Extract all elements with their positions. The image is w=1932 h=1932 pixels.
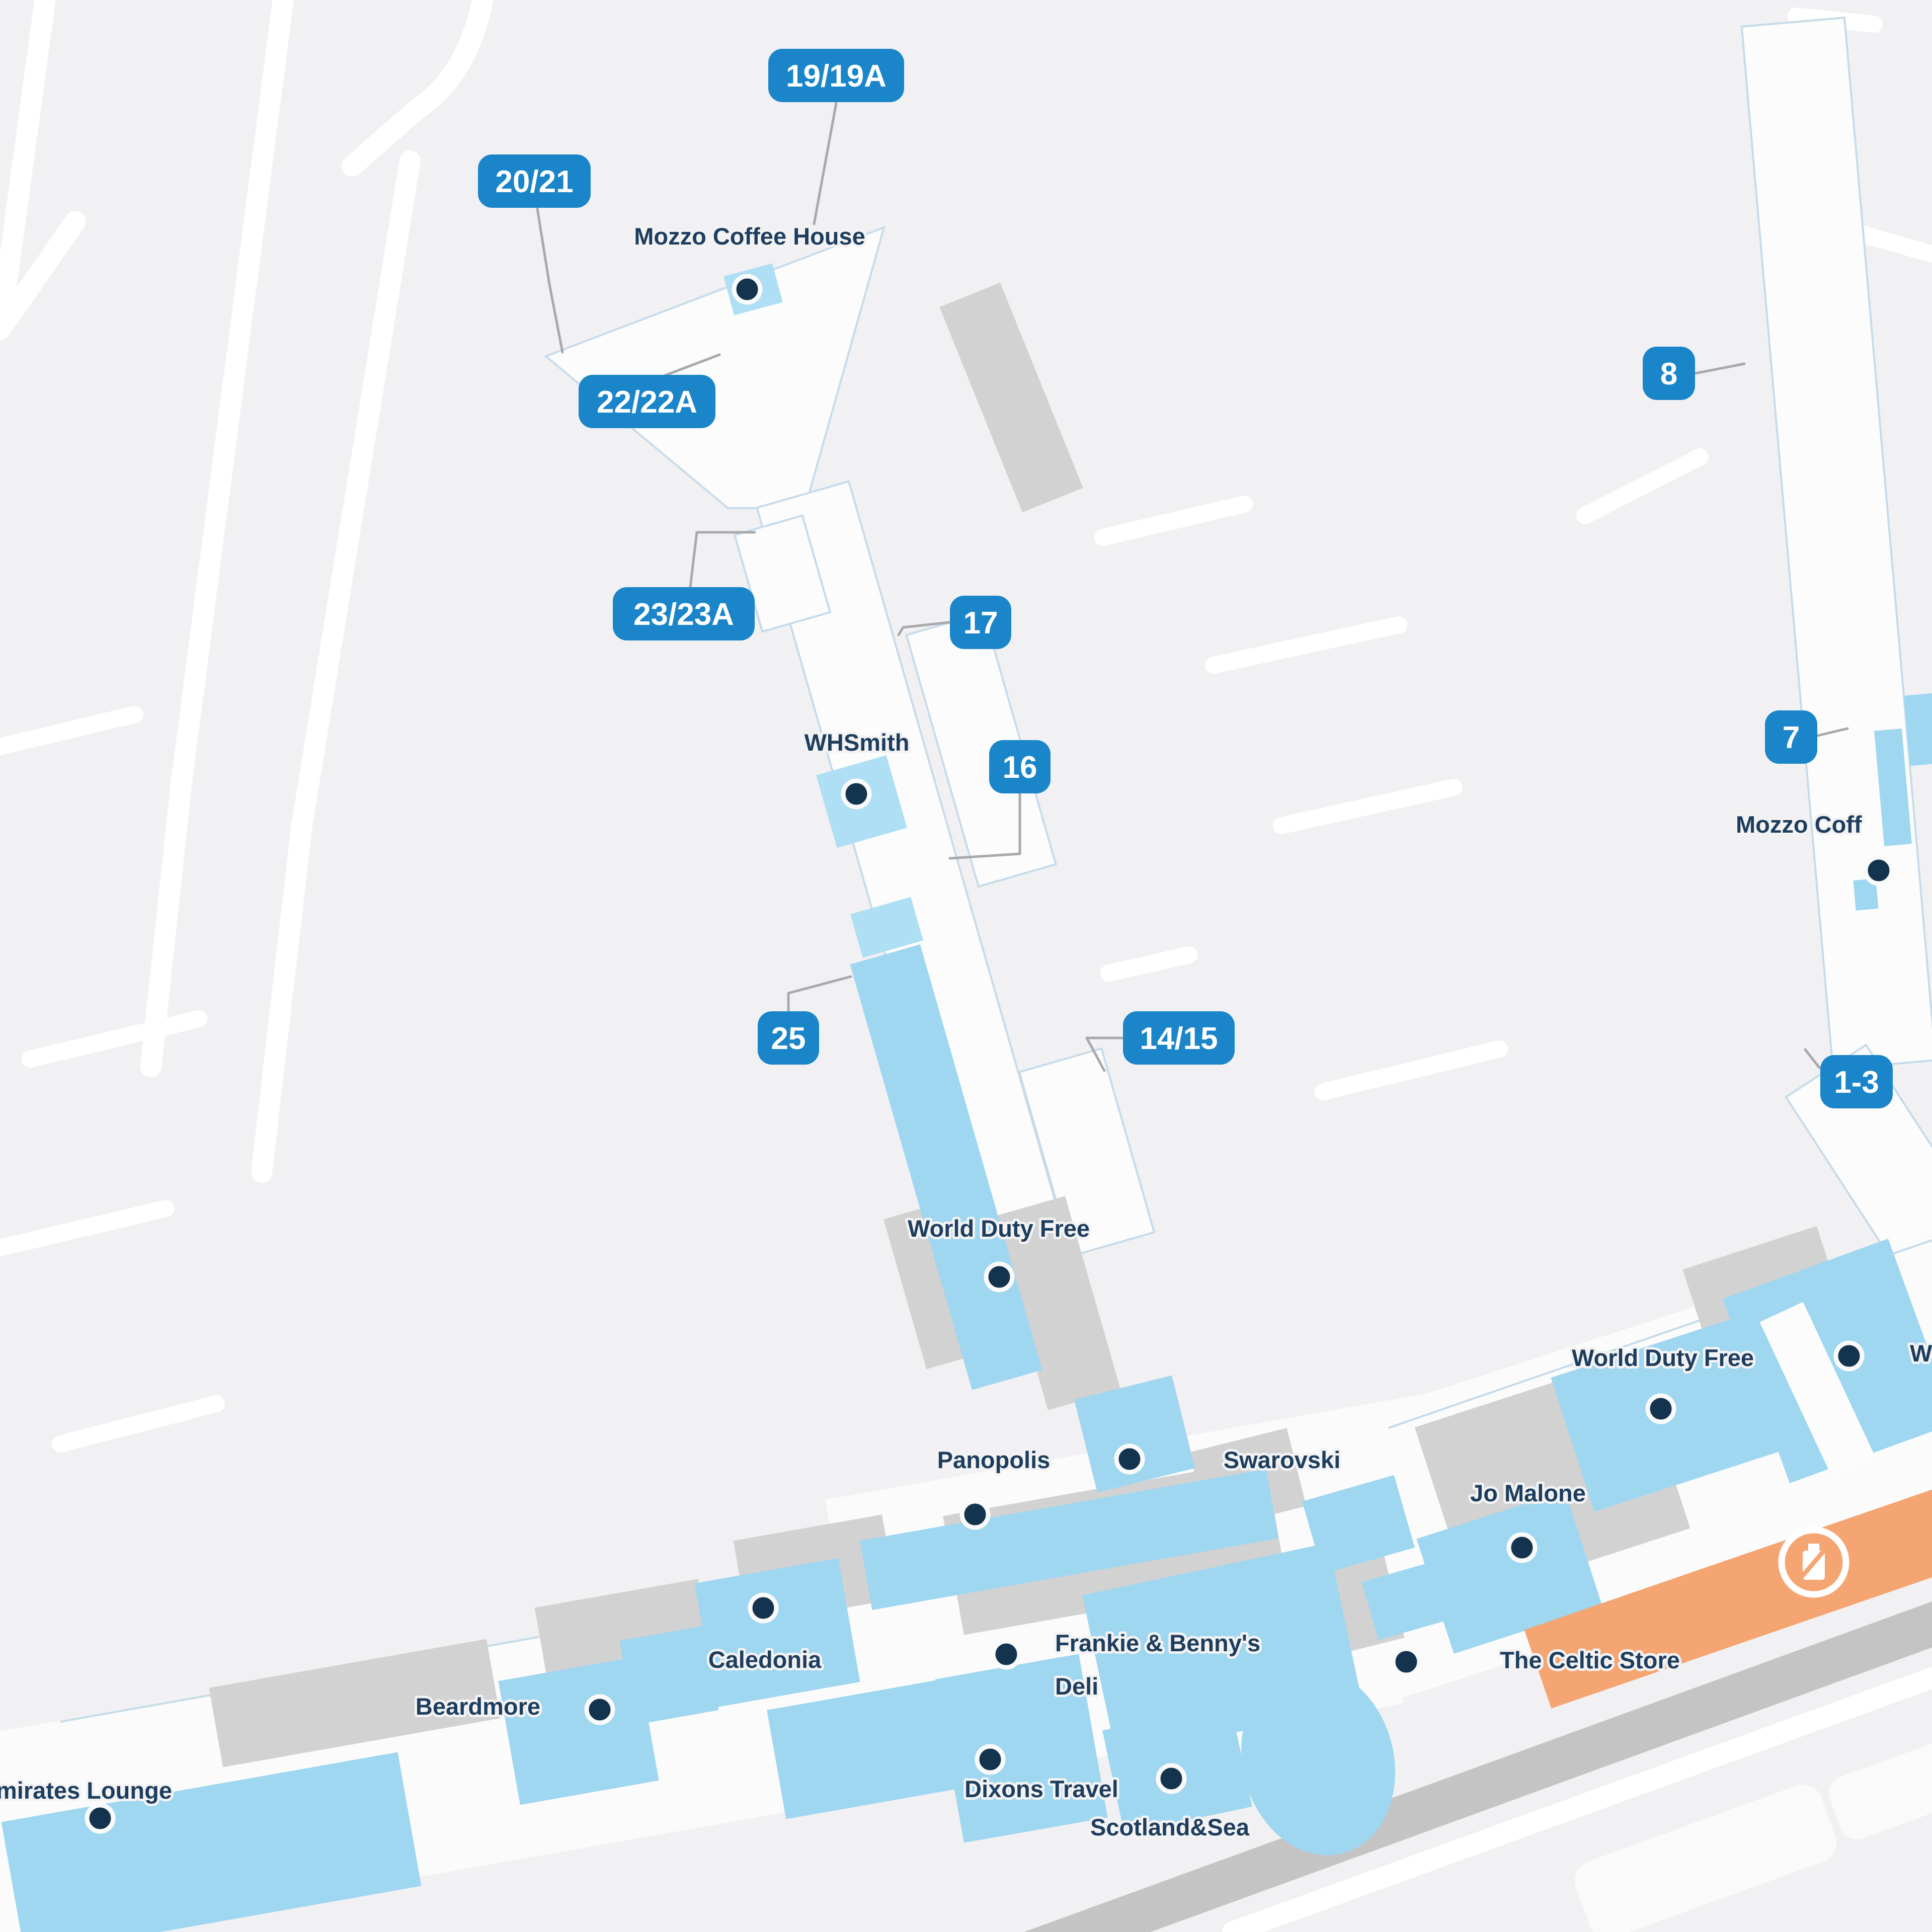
no-liquids-icon-bottle-neck bbox=[1808, 1544, 1819, 1552]
store-label-truncated-label-w[interactable]: W bbox=[1910, 1340, 1932, 1366]
store-marker-dot-world-duty-free-pier[interactable] bbox=[986, 1264, 1012, 1290]
store-marker-dot-world-duty-free-main[interactable] bbox=[1836, 1343, 1862, 1369]
gate-19-19a[interactable]: 19/19A bbox=[768, 49, 904, 102]
store-marker-dot-whsmith[interactable] bbox=[843, 781, 869, 807]
no-liquids-icon bbox=[1782, 1530, 1846, 1594]
store-marker-dot-mozzo-coffee-house-main[interactable] bbox=[1866, 857, 1892, 883]
store-marker-dot-emirates-lounge[interactable] bbox=[87, 1805, 113, 1831]
store-label-world-duty-free-pier[interactable]: World Duty Free bbox=[908, 1215, 1090, 1242]
gate-20-21[interactable]: 20/21 bbox=[478, 154, 591, 208]
store-marker-dot-scotland-and-sea[interactable] bbox=[1158, 1765, 1184, 1792]
store-marker-dot-beardmore[interactable] bbox=[587, 1697, 613, 1723]
store-label-swarovski[interactable]: Swarovski bbox=[1224, 1446, 1341, 1473]
store-marker-dot-mozzo-coffee-house-pier[interactable] bbox=[734, 276, 760, 302]
gate-1-3[interactable]: 1-3 bbox=[1820, 1055, 1893, 1108]
gate-label-8: 8 bbox=[1660, 357, 1677, 391]
gate-25[interactable]: 25 bbox=[758, 1011, 819, 1065]
store-label-emirates-lounge[interactable]: mirates Lounge bbox=[0, 1777, 172, 1804]
airport-map: Mozzo Coffee HouseWHSmithWorld Duty Free… bbox=[0, 0, 1932, 1932]
gate-label-22-22a: 22/22A bbox=[597, 385, 697, 420]
store-label-world-duty-free-main[interactable]: World Duty Free bbox=[1572, 1344, 1754, 1371]
shop-area-caledonia bbox=[694, 1558, 860, 1708]
store-label-mozzo-coffee-house-pier[interactable]: Mozzo Coffee House bbox=[634, 223, 865, 250]
gate-label-25: 25 bbox=[771, 1021, 806, 1056]
gate-14-15[interactable]: 14/15 bbox=[1123, 1011, 1235, 1065]
gate-7[interactable]: 7 bbox=[1765, 710, 1817, 764]
gate-label-16: 16 bbox=[1003, 750, 1037, 785]
store-marker-dot-dixons-travel[interactable] bbox=[977, 1746, 1003, 1773]
gate-label-17: 17 bbox=[963, 606, 998, 640]
store-label-mozzo-coffee-house-main[interactable]: Mozzo Coff bbox=[1736, 811, 1862, 838]
shop-area bbox=[620, 1626, 719, 1725]
store-marker-dot-caledonia[interactable] bbox=[750, 1595, 776, 1621]
store-label-frankie-and-bennys-deli[interactable]: Frankie & Benny's bbox=[1055, 1630, 1260, 1656]
gate-label-7: 7 bbox=[1783, 720, 1800, 755]
gate-label-14-15: 14/15 bbox=[1140, 1021, 1218, 1056]
store-label2-frankie-and-bennys-deli[interactable]: Deli bbox=[1055, 1673, 1098, 1700]
store-label-scotland-and-sea[interactable]: Scotland&Sea bbox=[1090, 1814, 1250, 1840]
gate-label-20-21: 20/21 bbox=[495, 165, 573, 199]
store-marker-dot-the-celtic-store[interactable] bbox=[1393, 1649, 1419, 1675]
store-label-the-celtic-store[interactable]: The Celtic Store bbox=[1500, 1647, 1680, 1673]
gate-label-23-23a: 23/23A bbox=[633, 597, 734, 632]
store-marker-dot-frankie-and-bennys-deli[interactable] bbox=[993, 1641, 1019, 1667]
store-marker-dot-panopolis[interactable] bbox=[962, 1501, 988, 1527]
store-marker-dot-swarovski[interactable] bbox=[1116, 1446, 1143, 1472]
store-label-panopolis[interactable]: Panopolis bbox=[937, 1446, 1051, 1473]
gate-22-22a[interactable]: 22/22A bbox=[579, 375, 715, 428]
store-marker-dot-world-duty-free-main[interactable] bbox=[1648, 1396, 1674, 1422]
gate-23-23a[interactable]: 23/23A bbox=[613, 587, 755, 640]
gate-8[interactable]: 8 bbox=[1643, 347, 1695, 400]
store-marker-dot-jo-malone[interactable] bbox=[1509, 1535, 1535, 1561]
gate-16[interactable]: 16 bbox=[989, 740, 1051, 793]
store-label-dixons-travel[interactable]: Dixons Travel bbox=[964, 1776, 1118, 1802]
store-label-jo-malone[interactable]: Jo Malone bbox=[1470, 1480, 1586, 1506]
gate-label-1-3: 1-3 bbox=[1834, 1065, 1879, 1100]
store-label-whsmith[interactable]: WHSmith bbox=[804, 729, 910, 756]
gate-label-19-19a: 19/19A bbox=[786, 59, 887, 94]
store-truncated-label-w[interactable]: W bbox=[1910, 1340, 1932, 1366]
store-label-caledonia[interactable]: Caledonia bbox=[708, 1646, 822, 1673]
gate-17[interactable]: 17 bbox=[950, 596, 1011, 649]
store-label-beardmore[interactable]: Beardmore bbox=[416, 1693, 540, 1720]
